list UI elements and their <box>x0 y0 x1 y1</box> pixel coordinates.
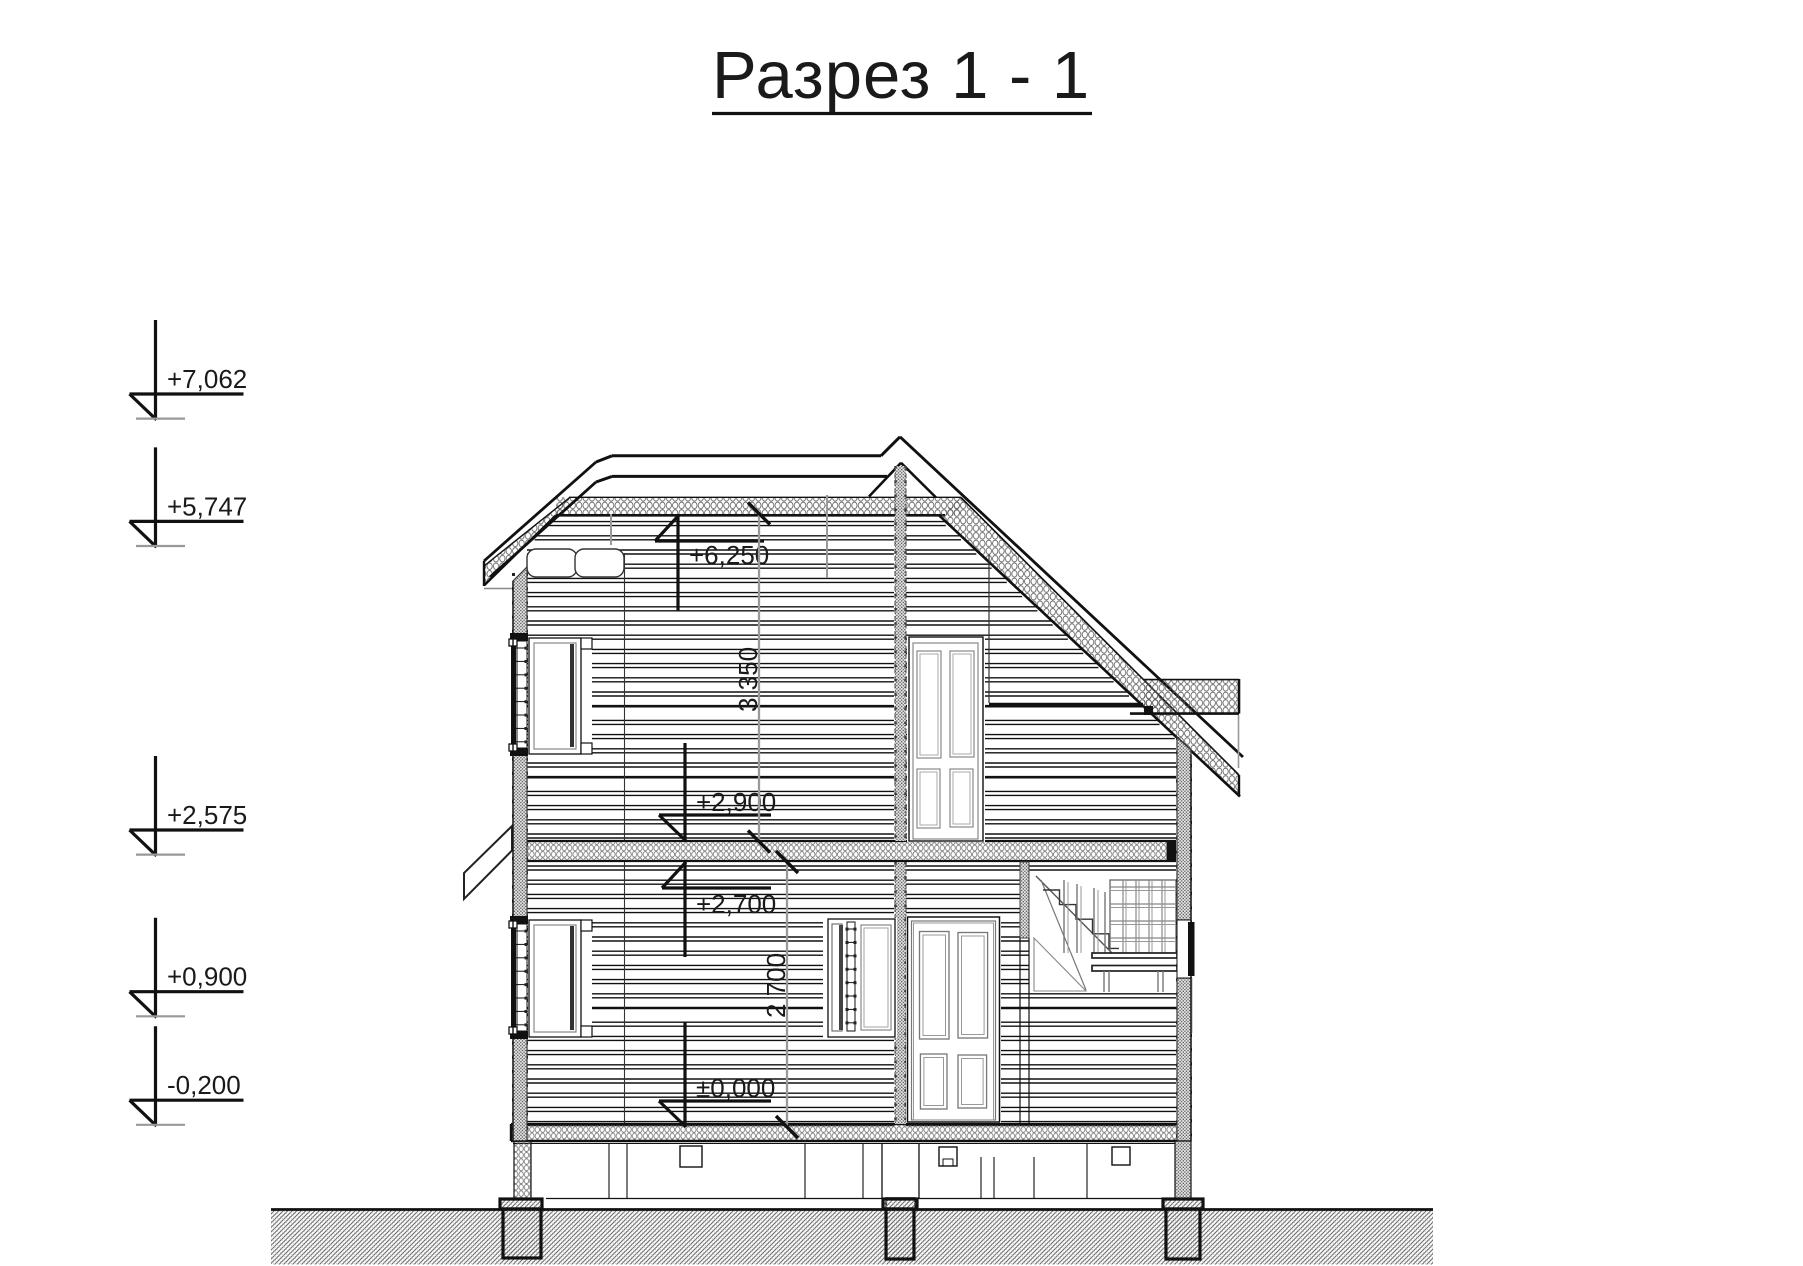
svg-text:+0,900: +0,900 <box>167 962 247 992</box>
svg-text:+2,700: +2,700 <box>696 889 776 919</box>
svg-text:3 350: 3 350 <box>733 647 763 712</box>
svg-text:-0,200: -0,200 <box>167 1070 241 1100</box>
svg-text:+5,747: +5,747 <box>167 491 247 521</box>
svg-text:+2,575: +2,575 <box>167 800 247 830</box>
svg-text:2 700: 2 700 <box>761 953 791 1018</box>
svg-text:±0,000: ±0,000 <box>696 1073 775 1103</box>
svg-text:Разрез 1 - 1: Разрез 1 - 1 <box>712 38 1090 113</box>
svg-text:+2,900: +2,900 <box>696 787 776 817</box>
svg-text:+7,062: +7,062 <box>167 364 247 394</box>
svg-text:+6,250: +6,250 <box>689 540 769 570</box>
